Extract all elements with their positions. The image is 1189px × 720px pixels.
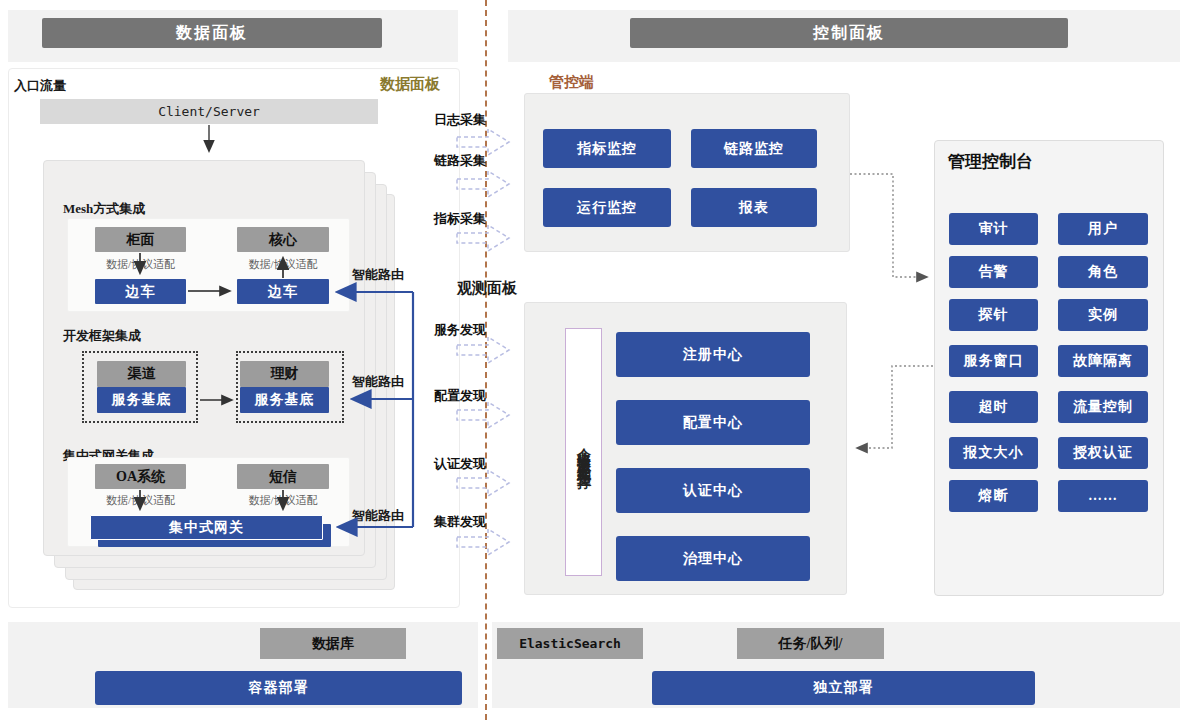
- config-center-button[interactable]: 配置中心: [616, 400, 810, 445]
- metric-monitor-button[interactable]: 指标监控: [543, 129, 671, 168]
- service-base-left[interactable]: 服务基底: [97, 387, 186, 413]
- architecture-diagram: 数据面板 控制面板 入口流量 数据面板 Client/Server Mesh方式…: [0, 0, 1189, 720]
- data-plane-corner-label: 数据面板: [360, 75, 440, 94]
- service-base-right[interactable]: 服务基底: [240, 387, 329, 413]
- console-button-instance[interactable]: 实例: [1058, 299, 1148, 331]
- console-button-more[interactable]: ……: [1058, 480, 1148, 512]
- flow-arrow-icon: [455, 335, 511, 365]
- gateway-app-sms: 短信: [237, 464, 329, 489]
- flow-arrow-icon: [455, 127, 511, 157]
- console-button-flow-control[interactable]: 流量控制: [1058, 391, 1148, 423]
- console-button-role[interactable]: 角色: [1058, 256, 1148, 288]
- central-gateway-bar[interactable]: 集中式网关: [90, 515, 323, 540]
- observe-panel-title: 观测面板: [457, 279, 517, 298]
- console-button-user[interactable]: 用户: [1058, 213, 1148, 245]
- console-button-authorization[interactable]: 授权认证: [1058, 437, 1148, 469]
- console-button-service-window[interactable]: 服务窗口: [949, 345, 1038, 377]
- control-plane-header: 控制面板: [630, 18, 1068, 48]
- report-button[interactable]: 报表: [691, 188, 817, 227]
- console-button-audit[interactable]: 审计: [949, 213, 1038, 245]
- task-queue-bar: 任务/队列/: [737, 628, 884, 659]
- monitor-panel: [524, 93, 850, 252]
- client-server-bar: Client/Server: [40, 99, 378, 124]
- framework-section-title: 开发框架集成: [63, 327, 141, 345]
- database-bar: 数据库: [260, 628, 406, 659]
- standalone-deploy-bar[interactable]: 独立部署: [652, 671, 1035, 705]
- sidecar-node-left[interactable]: 边车: [95, 279, 186, 304]
- framework-app-channel: 渠道: [97, 361, 186, 387]
- flow-arrow-icon: [455, 169, 511, 199]
- smart-route-label-3: 智能路由: [352, 507, 404, 525]
- data-plane-header: 数据面板: [42, 18, 382, 48]
- flow-arrow-icon: [455, 400, 511, 430]
- flow-arrow-icon: [455, 468, 511, 498]
- governance-center-button[interactable]: 治理中心: [616, 536, 810, 581]
- console-button-timeout[interactable]: 超时: [949, 391, 1038, 423]
- sidecar-node-right[interactable]: 边车: [237, 279, 329, 304]
- runtime-monitor-button[interactable]: 运行监控: [543, 188, 671, 227]
- registry-center-button[interactable]: 注册中心: [616, 332, 810, 377]
- mesh-adapter-label-left: 数据/协议适配: [95, 257, 186, 272]
- console-button-probe[interactable]: 探针: [949, 299, 1038, 331]
- console-title: 管理控制台: [948, 150, 1033, 173]
- console-button-circuit-breaker[interactable]: 熔断: [949, 480, 1038, 512]
- mesh-adapter-label-right: 数据/协议适配: [237, 257, 329, 272]
- smart-route-label-2: 智能路由: [352, 373, 404, 391]
- gateway-adapter-label-left: 数据/协议适配: [95, 493, 186, 508]
- elasticsearch-bar: ElasticSearch: [497, 628, 643, 659]
- console-button-alert[interactable]: 告警: [949, 256, 1038, 288]
- framework-app-wealth: 理财: [240, 361, 329, 387]
- flow-arrow-icon: [455, 223, 511, 253]
- trace-monitor-button[interactable]: 链路监控: [691, 129, 817, 168]
- mesh-section-title: Mesh方式集成: [63, 200, 145, 218]
- smart-route-label-1: 智能路由: [352, 266, 404, 284]
- monitor-panel-label: 管控端: [549, 73, 594, 92]
- console-button-fault-isolation[interactable]: 故障隔离: [1058, 345, 1148, 377]
- entry-traffic-label: 入口流量: [14, 77, 66, 95]
- gateway-adapter-label-right: 数据/协议适配: [237, 493, 329, 508]
- console-button-message-size[interactable]: 报文大小: [949, 437, 1038, 469]
- container-deploy-bar[interactable]: 容器部署: [95, 671, 462, 705]
- mesh-app-core: 核心: [237, 227, 329, 252]
- gateway-app-oa: OA系统: [95, 464, 186, 489]
- flow-arrow-icon: [455, 527, 511, 557]
- auth-center-button[interactable]: 认证中心: [616, 468, 810, 513]
- mesh-app-counter: 柜面: [95, 227, 186, 252]
- microservice-support-vertical-label: 企业级微服务架构支撑: [565, 328, 602, 576]
